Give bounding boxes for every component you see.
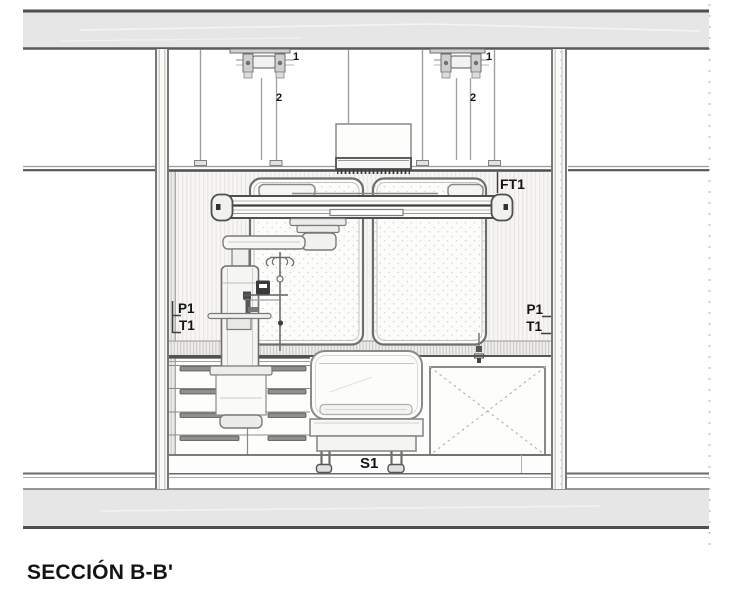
label-right-wall-t1: T1: [526, 319, 542, 334]
architectural-section-drawing: 1 2 1 2 FT1 P1 T1 P1 T1 S1 SECCIÓN B-B': [0, 0, 732, 598]
section-title: SECCIÓN B-B': [27, 560, 173, 584]
pendant-bottom-cap: [220, 415, 262, 428]
label-left-wall-p1: P1: [178, 301, 195, 316]
ceiling-slab: [23, 11, 709, 49]
bridge-end-cap-right: [492, 195, 513, 221]
label-mount-left-ref1: 1: [293, 51, 299, 63]
floor-slab: [23, 474, 709, 528]
pendant-crossbar: [208, 314, 271, 319]
label-bed-s1: S1: [360, 455, 378, 472]
pendant-base-housing: [216, 375, 266, 415]
label-left-wall-t1: T1: [179, 318, 195, 333]
cabinet-tall-right: [430, 367, 545, 455]
bed-caster-right: [388, 465, 404, 473]
column-right: [551, 49, 567, 489]
ceiling-equipment-box: [336, 124, 411, 174]
equipment-bridge: [212, 194, 513, 221]
pendant-ceiling-mount-right: [430, 49, 489, 160]
column-left: [155, 49, 169, 489]
label-mount-right-ref2: 2: [470, 92, 476, 104]
bed-base: [317, 436, 416, 451]
bridge-sub-bar: [330, 210, 403, 216]
section-drawing-svg: 1 2 1 2 FT1 P1 T1 P1 T1 S1 SECCIÓN B-B': [0, 0, 732, 598]
bridge-end-cap-left: [212, 195, 233, 221]
label-mount-right-ref1: 1: [486, 51, 492, 63]
label-false-ceiling-ft1: FT1: [500, 176, 525, 192]
pendant-ceiling-mount-left: [230, 49, 294, 160]
label-right-wall-p1: P1: [526, 302, 543, 317]
label-mount-left-ref2: 2: [276, 92, 282, 104]
bed-caster-left: [317, 465, 332, 473]
pendant-shelf: [227, 319, 251, 330]
pendant-base-plate: [210, 366, 272, 375]
bed-platform: [310, 419, 423, 436]
pendant-arm: [223, 233, 336, 250]
